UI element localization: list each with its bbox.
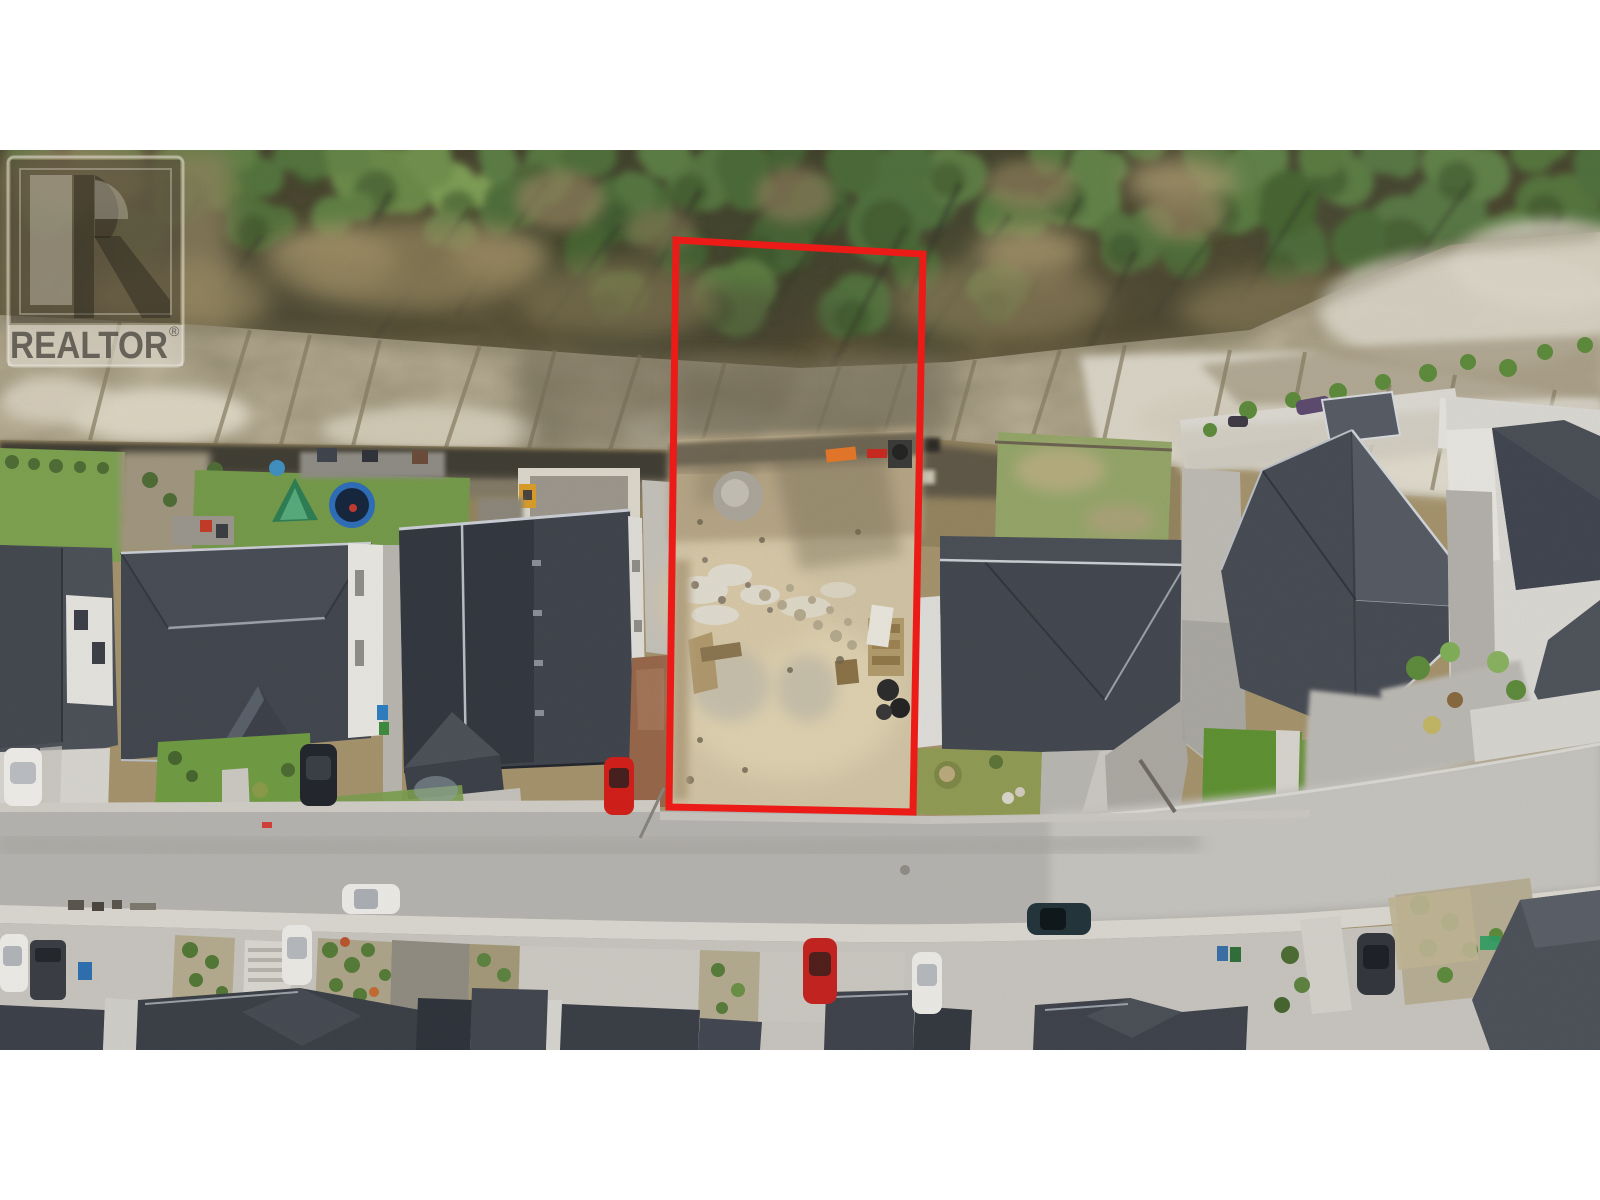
svg-text:®: ® <box>169 323 180 339</box>
svg-text:REALTOR: REALTOR <box>10 325 168 367</box>
